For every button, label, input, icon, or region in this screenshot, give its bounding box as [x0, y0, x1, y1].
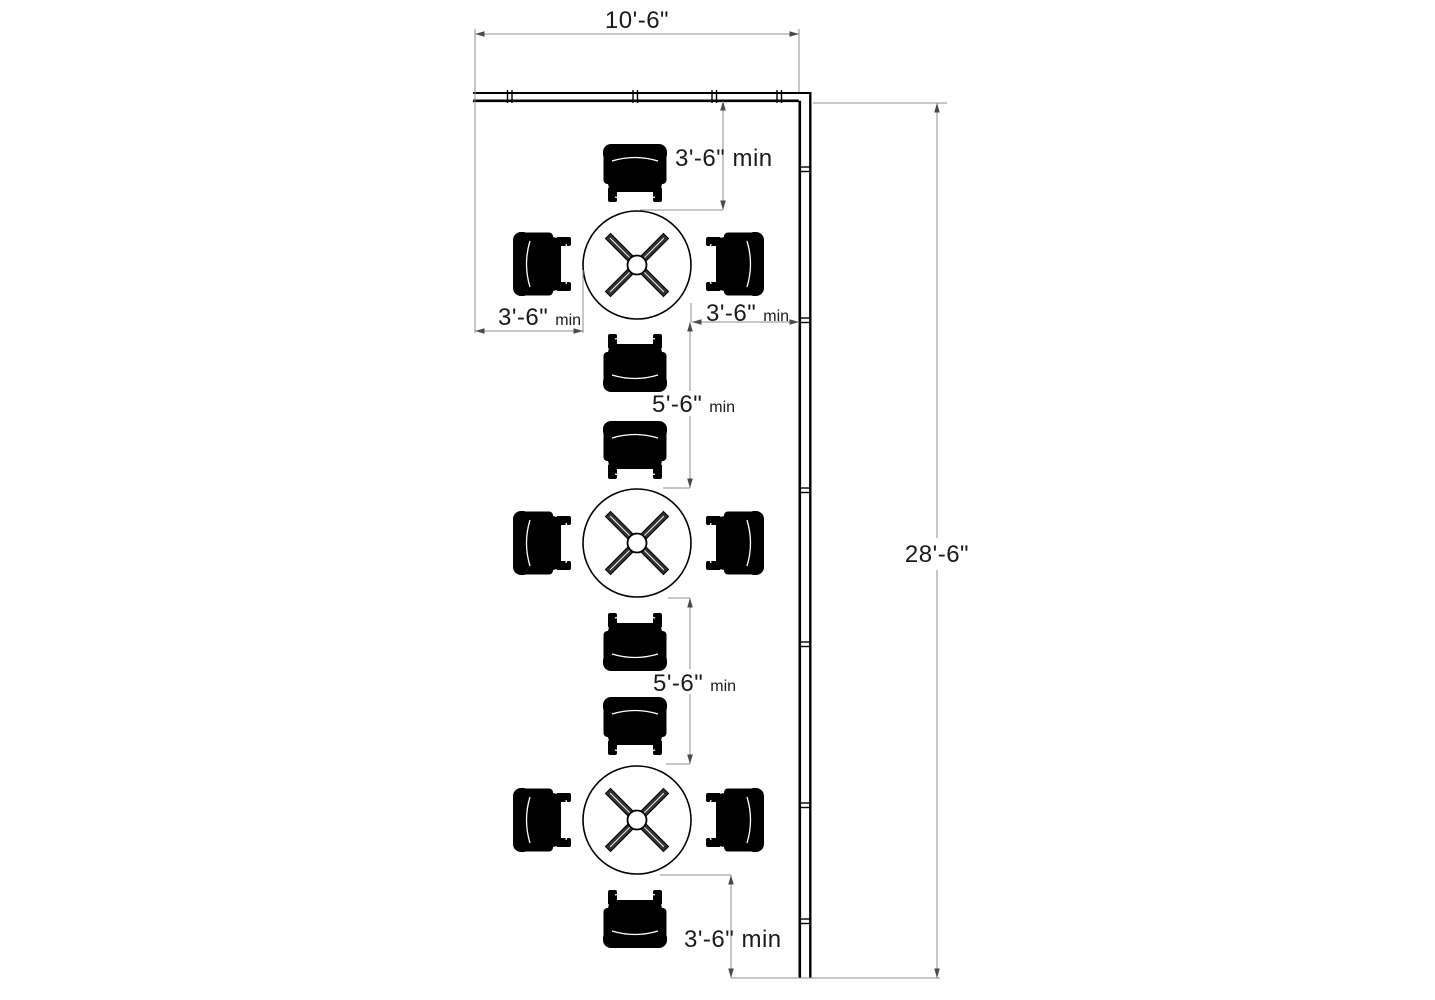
chair	[603, 890, 667, 948]
dimension-arrow	[790, 319, 800, 325]
chair	[603, 613, 667, 671]
chair	[706, 232, 764, 296]
round-table	[583, 211, 691, 319]
dimension-bottom-clearance: 3'-6" min	[660, 875, 782, 978]
chair	[603, 697, 667, 755]
dimension-arrow	[934, 103, 940, 113]
dimension-arrow	[687, 322, 693, 332]
dimension-label-top-width: 10'-6"	[605, 7, 669, 34]
chair	[603, 421, 667, 479]
dimension-arrow	[720, 101, 726, 111]
dimension-arrow	[687, 479, 693, 489]
dimension-label-right-height: 28'-6"	[905, 541, 969, 568]
dimension-label-aisle-upper: 5'-6"min	[652, 391, 735, 418]
furniture	[513, 144, 764, 948]
chair	[513, 232, 571, 296]
chair	[603, 334, 667, 392]
dimension-arrow	[720, 201, 726, 211]
round-table	[583, 489, 691, 597]
dimension-arrow	[692, 319, 702, 325]
chair	[513, 788, 571, 852]
dimension-aisle-upper: 5'-6"min	[652, 322, 735, 488]
dimension-label-right-clearance: 3'-6"min	[706, 300, 789, 327]
dimension-arrow	[934, 969, 940, 979]
dimension-arrow	[687, 598, 693, 608]
dimension-arrow	[687, 755, 693, 765]
dimension-label-bottom-clearance: 3'-6" min	[684, 926, 782, 953]
dimension-arrow	[790, 31, 800, 37]
dimension-label-left-clearance: 3'-6"min	[498, 304, 581, 331]
round-table	[583, 766, 691, 874]
chair	[706, 788, 764, 852]
chair	[706, 511, 764, 575]
dimension-arrow	[475, 31, 485, 37]
chair	[513, 511, 571, 575]
dimension-right-height: 28'-6"	[731, 103, 969, 978]
dimension-label-aisle-lower: 5'-6"min	[653, 670, 736, 697]
dimension-label-top-clearance: 3'-6" min	[675, 145, 773, 172]
dimension-right-clearance: 3'-6"min	[691, 300, 799, 327]
dimension-arrow	[728, 875, 734, 885]
dimension-arrow	[475, 328, 485, 334]
dimension-arrow	[728, 969, 734, 979]
floor-plan: 10'-6" 28'-6" 3'-6" min 3'-6"min 3'-6"mi…	[0, 0, 1435, 1000]
dimension-aisle-lower: 5'-6"min	[653, 598, 736, 764]
chair	[603, 144, 667, 202]
dimension-arrow	[574, 328, 584, 334]
